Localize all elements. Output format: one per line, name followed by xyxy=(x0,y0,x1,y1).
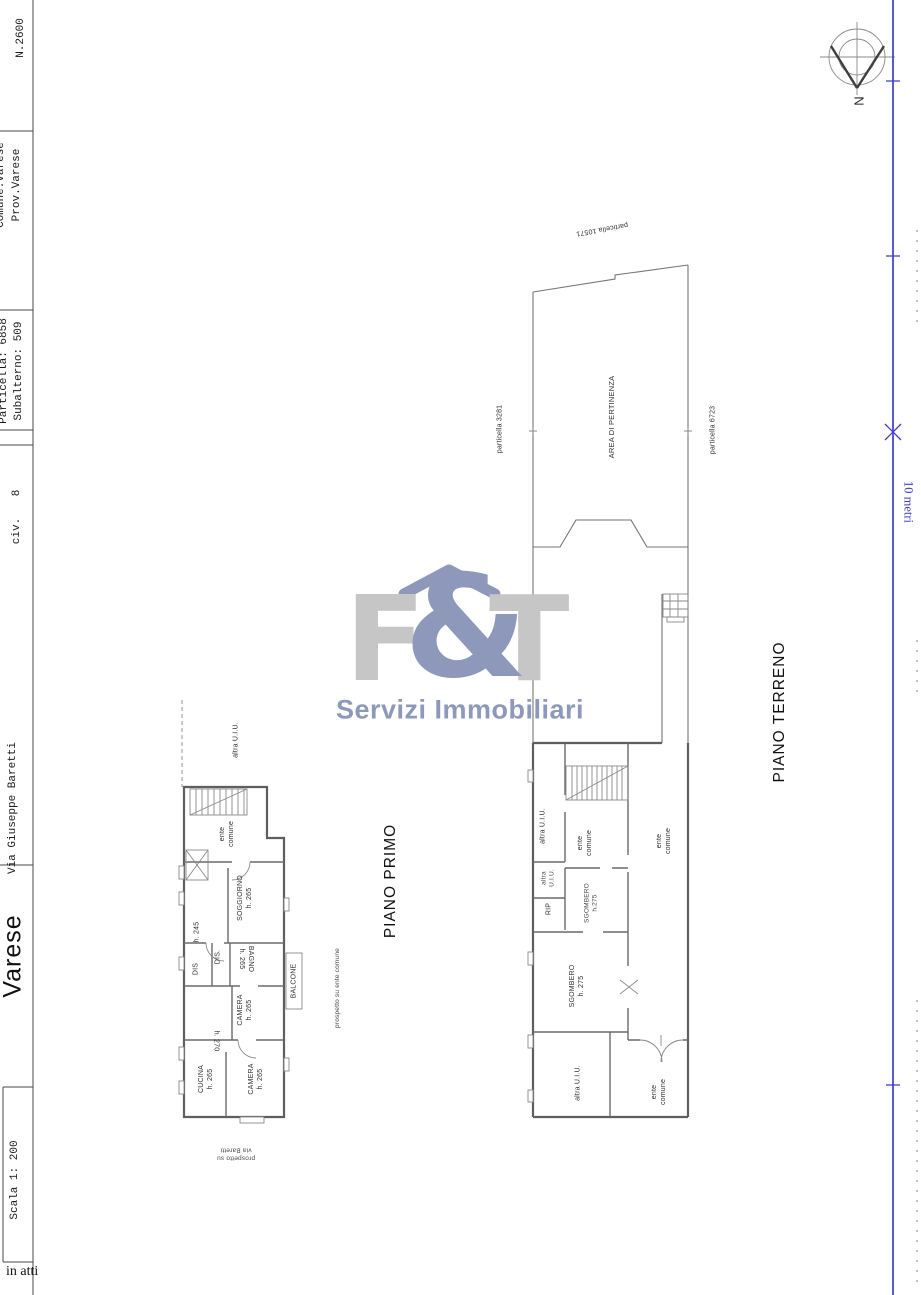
scale-bar xyxy=(885,0,901,1295)
prospetto-ente-comune-note: prospetto su ente comune xyxy=(334,948,342,1028)
city-name: Varese xyxy=(0,914,28,997)
room-label-dis2: DIS xyxy=(191,963,200,975)
room-label-ente-comune-corridor: entecomune xyxy=(655,828,673,854)
room-label-soggiorno: SOGGIORNOh. 265 xyxy=(236,875,254,921)
room-label-rip: RIP xyxy=(544,903,553,915)
note-line: prospetto su xyxy=(217,1154,255,1161)
room-height: h.275 xyxy=(592,894,599,911)
north-label: N xyxy=(852,96,867,105)
floor-title-piano-primo: PIANO PRIMO xyxy=(382,824,400,938)
compass-icon xyxy=(820,22,895,95)
subalterno-field: Subalterno: 509 xyxy=(13,321,25,420)
civico-number: 8 xyxy=(11,490,23,497)
in-atti-note: in atti xyxy=(6,1264,38,1280)
scale-bar-label: 10 metri xyxy=(901,481,916,523)
floor-title-piano-terreno: PIANO TERRENO xyxy=(771,641,789,782)
room-name: CAMERA xyxy=(237,994,244,1025)
room-label-camera-1: CAMERAh. 265 xyxy=(236,994,254,1025)
room-name-2: comune xyxy=(228,821,235,847)
room-name: CAMERA xyxy=(248,1063,255,1094)
room-height: h. 265 xyxy=(246,1000,253,1021)
north-arrow-icon xyxy=(831,46,884,88)
cadastral-plan-sheet: N.2600 Comune:Varese Prov.Varese Partice… xyxy=(0,0,921,1295)
height-label-h270: h. 270 xyxy=(211,1031,220,1052)
room-name: ente xyxy=(651,1085,658,1099)
room-name: altra xyxy=(541,871,548,885)
room-label-balcone: BALCONE xyxy=(289,964,298,999)
room-height: h. 275 xyxy=(578,976,585,997)
room-name-2: comune xyxy=(665,828,672,854)
room-name-2: comune xyxy=(660,1079,667,1105)
parcel-label-6723: particella 6723 xyxy=(708,406,717,455)
room-label-ente-comune-stair: entecomune xyxy=(576,830,594,856)
civico-label: civ. xyxy=(11,518,23,544)
room-label-altra-uiu-2: altraU.I.U. xyxy=(541,869,558,887)
room-label-cucina: CUCINAh. 265 xyxy=(197,1065,215,1093)
room-height: h. 265 xyxy=(207,1069,214,1090)
room-name: ente xyxy=(219,827,226,841)
sheet-number: N.2600 xyxy=(15,18,27,58)
logo-ampersand: & xyxy=(404,557,528,699)
area-di-pertinenza-label: AREA DI PERTINENZA xyxy=(607,376,617,459)
scale-field: Scala 1: 200 xyxy=(9,1140,21,1219)
room-label-bagno: BAGNOh. 265 xyxy=(237,946,255,972)
room-name: ente xyxy=(577,836,584,850)
room-label-sgombero-big: SGOMBEROh. 275 xyxy=(568,965,586,1008)
room-label-ente-comune-bottom: entecomune xyxy=(650,1079,668,1105)
prospetto-via-baretti-note: prospetto suvia Baretti xyxy=(217,1145,255,1162)
room-name-2: U.I.U. xyxy=(549,869,556,887)
particella-field: Particella: 6858 xyxy=(0,318,10,424)
note-line-2: via Baretti xyxy=(220,1146,251,1153)
street-field: Via Giuseppe Baretti xyxy=(7,742,19,874)
room-label-altra-uiu-1: altra U.I.U. xyxy=(538,808,547,844)
room-label-ente-comune-primo: entecomune xyxy=(218,821,236,847)
room-name: SOGGIORNO xyxy=(237,875,244,921)
room-name: SGOMBERO xyxy=(584,883,591,923)
province-field: Prov.Varese xyxy=(11,149,23,222)
room-label-camera-2: CAMERAh. 265 xyxy=(247,1063,265,1094)
room-height: h. 265 xyxy=(246,888,253,909)
room-height: h. 265 xyxy=(238,949,245,970)
room-name: SGOMBERO xyxy=(569,965,576,1008)
height-label-h245: h. 245 xyxy=(192,922,201,943)
room-label-altra-uiu-3: altra U.I.U. xyxy=(573,1065,582,1101)
parcel-label-3281: particella 3281 xyxy=(495,405,504,454)
room-name: ente xyxy=(656,834,663,848)
room-name: CUCINA xyxy=(198,1065,205,1093)
room-label-altra-uiu-primo: altra U.I.U. xyxy=(231,722,240,758)
room-name: BAGNO xyxy=(247,946,254,972)
room-label-sgombero-small: SGOMBEROh.275 xyxy=(584,883,601,923)
room-name-2: comune xyxy=(586,830,593,856)
room-label-dis1: DIS. xyxy=(213,950,222,964)
comune-field-clipped: Comune:Varese xyxy=(0,142,7,228)
room-height: h. 265 xyxy=(257,1069,264,1090)
